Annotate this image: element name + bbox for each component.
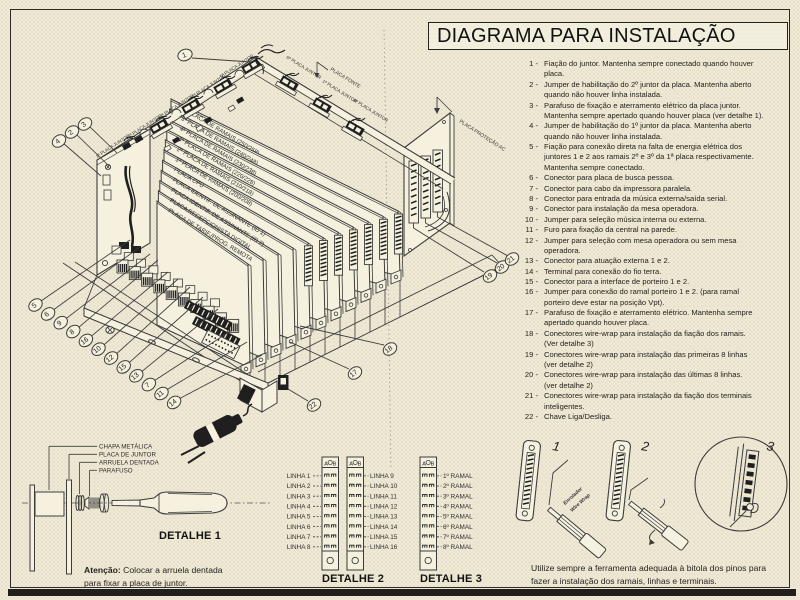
svg-text:PLACA PROTEÇÃO AC: PLACA PROTEÇÃO AC [458,118,507,153]
svg-text:LINHA 9: LINHA 9 [370,473,394,480]
svg-text:ARRUELA DENTADA: ARRUELA DENTADA [99,460,160,467]
svg-text:2º RAMAL: 2º RAMAL [443,483,473,490]
svg-text:B: B [358,462,362,468]
svg-text:LINHA 4: LINHA 4 [287,503,311,510]
svg-text:8º RAMAL: 8º RAMAL [443,544,473,551]
svg-text:A: A [422,462,426,468]
svg-text:LINHA 14: LINHA 14 [370,524,398,531]
svg-text:A: A [324,462,328,468]
svg-text:LINHA 6: LINHA 6 [287,524,311,531]
svg-text:LINHA 15: LINHA 15 [370,534,398,541]
svg-text:A: A [349,462,353,468]
svg-text:2: 2 [639,438,650,454]
svg-text:LINHA 11: LINHA 11 [370,493,397,500]
svg-text:7º RAMAL: 7º RAMAL [443,534,473,541]
svg-text:1º RAMAL: 1º RAMAL [443,473,473,480]
svg-text:PARAFUSO: PARAFUSO [99,468,133,475]
svg-text:6º RAMAL: 6º RAMAL [443,524,473,531]
svg-text:3º RAMAL: 3º RAMAL [443,493,473,500]
svg-text:LINHA 13: LINHA 13 [370,514,398,521]
svg-text:LINHA 16: LINHA 16 [370,544,398,551]
svg-text:LINHA 7: LINHA 7 [287,534,311,541]
svg-text:LINHA 2: LINHA 2 [287,483,311,490]
svg-text:4º RAMAL: 4º RAMAL [443,503,473,510]
svg-text:1: 1 [551,438,561,454]
svg-text:LINHA 3: LINHA 3 [287,493,311,500]
svg-text:LINHA 5: LINHA 5 [287,514,311,521]
svg-text:LINHA 12: LINHA 12 [370,503,398,510]
svg-text:B: B [333,462,337,468]
svg-text:5º RAMAL: 5º RAMAL [443,514,473,521]
svg-text:B: B [431,462,435,468]
svg-text:LINHA 10: LINHA 10 [370,483,398,490]
svg-text:LINHA 1: LINHA 1 [287,473,311,480]
svg-text:CHAPA METÁLICA: CHAPA METÁLICA [99,444,153,451]
svg-text:LINHA 8: LINHA 8 [287,544,311,551]
svg-text:PLACA DE JUNTOR: PLACA DE JUNTOR [99,452,156,459]
